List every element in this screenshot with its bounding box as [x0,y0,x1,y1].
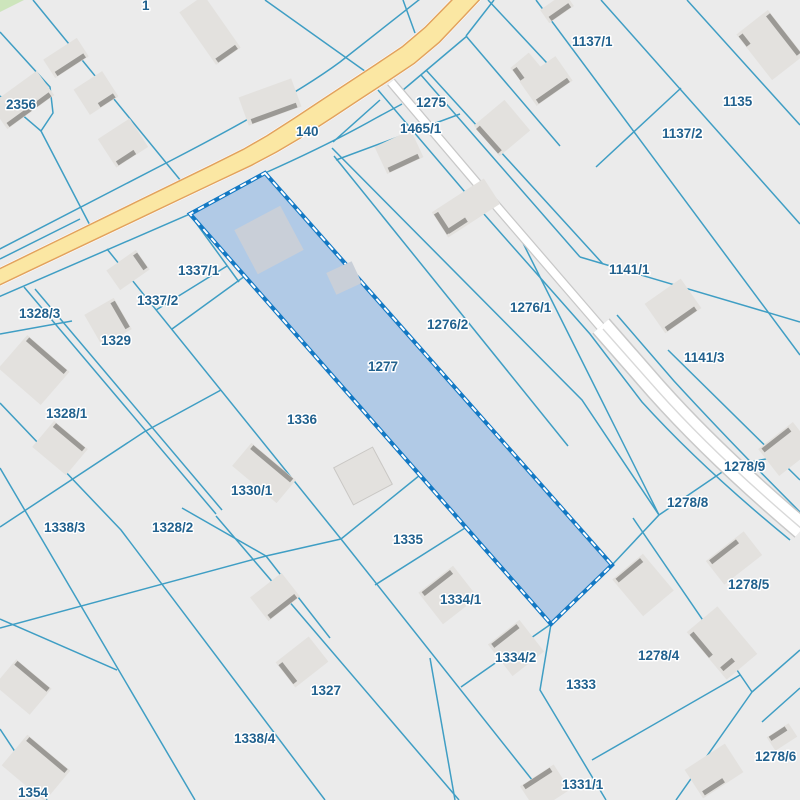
svg-text:1141/1: 1141/1 [609,262,650,277]
svg-text:1334/1: 1334/1 [440,592,482,607]
svg-text:1465/1: 1465/1 [400,121,442,136]
svg-text:1278/5: 1278/5 [728,577,770,592]
svg-text:1135: 1135 [723,94,753,109]
svg-text:1137/2: 1137/2 [662,126,703,141]
svg-text:1137/1: 1137/1 [572,34,613,49]
svg-text:1275: 1275 [416,95,447,110]
svg-text:1335: 1335 [393,532,424,547]
svg-text:1334/2: 1334/2 [495,650,536,665]
svg-text:1338/4: 1338/4 [234,731,276,746]
svg-text:1336: 1336 [287,412,318,427]
svg-text:1328/2: 1328/2 [152,520,193,535]
svg-text:1277: 1277 [368,359,398,374]
svg-text:1276/1: 1276/1 [510,300,552,315]
svg-text:1278/6: 1278/6 [755,749,797,764]
svg-text:1333: 1333 [566,677,597,692]
svg-text:1331/1: 1331/1 [562,777,604,792]
svg-text:140: 140 [296,124,319,139]
svg-text:1278/8: 1278/8 [667,495,709,510]
svg-text:1276/2: 1276/2 [427,317,468,332]
svg-text:1330/1: 1330/1 [231,483,273,498]
svg-text:1328/3: 1328/3 [19,306,61,321]
svg-text:1337/1: 1337/1 [178,263,220,278]
svg-text:2356: 2356 [6,97,37,112]
svg-text:1328/1: 1328/1 [46,406,88,421]
svg-text:1141/3: 1141/3 [684,350,725,365]
svg-text:1327: 1327 [311,683,341,698]
svg-text:1278/9: 1278/9 [724,459,765,474]
svg-text:1337/2: 1337/2 [137,293,178,308]
svg-text:1: 1 [142,0,150,13]
svg-text:1329: 1329 [101,333,131,348]
svg-text:1338/3: 1338/3 [44,520,86,535]
svg-text:1278/4: 1278/4 [638,648,680,663]
svg-text:1354: 1354 [18,785,49,800]
